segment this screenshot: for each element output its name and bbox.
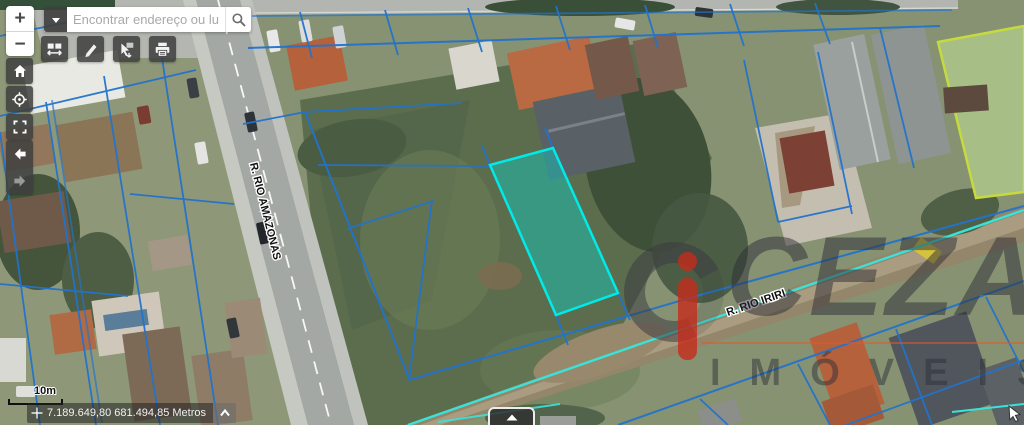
coordinates-bar: 7.189.649,80 681.494,85 Metros xyxy=(27,403,236,423)
zoom-control: + − xyxy=(6,6,34,56)
zoom-out-button[interactable]: − xyxy=(6,31,34,56)
pencil-icon xyxy=(82,41,99,58)
select-features-button[interactable] xyxy=(113,36,140,62)
locate-button[interactable] xyxy=(6,86,33,112)
locate-icon xyxy=(11,91,28,108)
chevron-up-icon xyxy=(219,408,231,418)
chevron-up-icon xyxy=(505,413,519,422)
search-icon xyxy=(231,12,247,28)
extent-history-control xyxy=(6,140,33,194)
chevron-down-icon xyxy=(50,14,62,26)
arrow-right-icon xyxy=(12,173,28,189)
map-canvas[interactable]: R. RIO AMAZONAS R. RIO IRIRI xyxy=(0,0,1024,425)
fullscreen-button[interactable] xyxy=(6,114,33,140)
crosshair-coords-icon xyxy=(31,407,43,419)
basemap-swipe-button[interactable] xyxy=(41,36,68,62)
next-extent-button[interactable] xyxy=(6,167,33,194)
coordinates-collapse-button[interactable] xyxy=(213,403,236,423)
previous-extent-button[interactable] xyxy=(6,140,33,167)
map-viewer: R. RIO AMAZONAS R. RIO IRIRI CEZAR IMÓVE… xyxy=(0,0,1024,425)
attribution-expand-tab[interactable] xyxy=(488,407,535,425)
draw-measure-button[interactable] xyxy=(77,36,104,62)
home-button[interactable] xyxy=(6,58,33,84)
search-submit-button[interactable] xyxy=(225,7,251,32)
select-cursor-icon xyxy=(118,41,135,58)
zoom-in-button[interactable]: + xyxy=(6,6,34,31)
print-button[interactable] xyxy=(149,36,176,62)
expand-icon xyxy=(12,119,28,135)
coordinates-readout: 7.189.649,80 681.494,85 Metros xyxy=(43,407,213,419)
geocoder-search xyxy=(44,7,251,32)
map-toolbar xyxy=(41,36,176,62)
search-input[interactable] xyxy=(67,7,225,32)
arrow-left-icon xyxy=(12,146,28,162)
printer-icon xyxy=(154,41,171,58)
search-sources-dropdown[interactable] xyxy=(44,7,67,32)
home-icon xyxy=(12,63,28,79)
swipe-icon xyxy=(46,41,63,58)
